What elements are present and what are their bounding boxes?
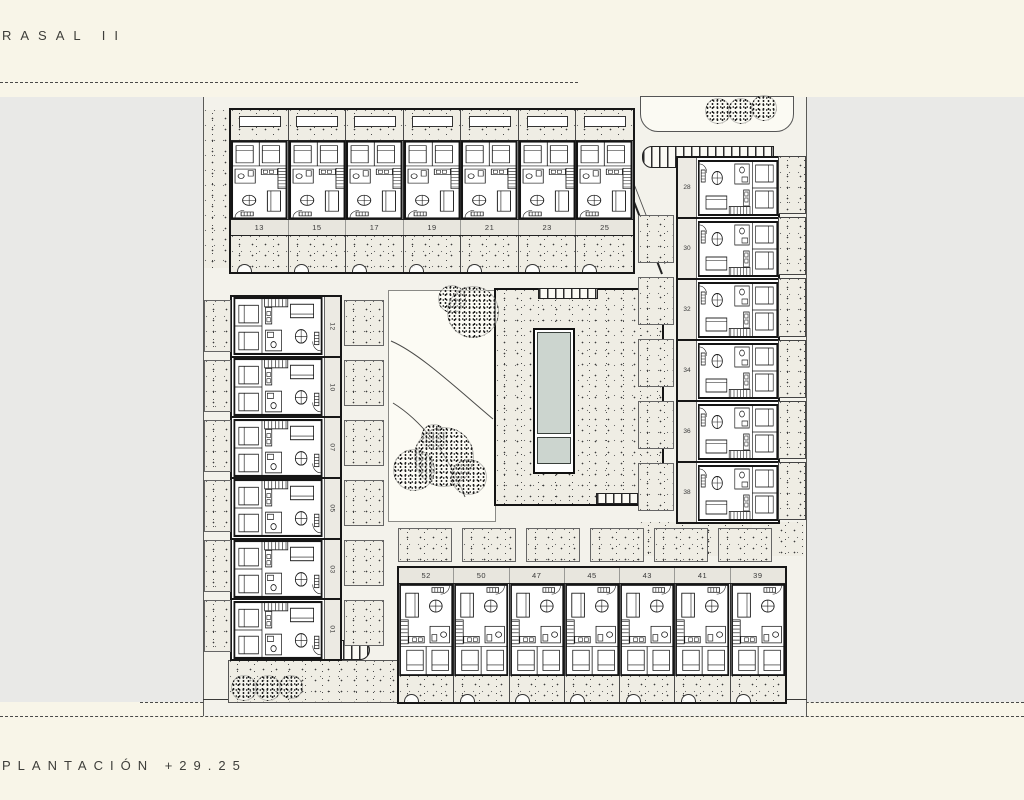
- unit-number-text: 07: [329, 444, 336, 452]
- unit-number-text: 01: [329, 626, 336, 634]
- unit-floorplan: [731, 584, 785, 676]
- unit-number: 17: [346, 220, 404, 235]
- pergola-rail: [412, 116, 454, 127]
- unit-number: 03: [324, 540, 340, 599]
- unit-floorplan: [698, 465, 778, 521]
- unit-number: 52: [399, 568, 454, 583]
- unit-cell-19: [404, 141, 462, 219]
- top-row-units: [231, 141, 633, 219]
- unit-cell-41: [675, 584, 730, 676]
- front-patio: [231, 110, 289, 140]
- gate-arc: [681, 694, 696, 702]
- side-patio: [778, 217, 806, 275]
- unit-cell-01: [232, 600, 324, 659]
- pergola-rail: [584, 116, 626, 127]
- unit-number: 30: [678, 219, 697, 278]
- unit-cell-28: [697, 158, 778, 217]
- unit-floorplan: [576, 141, 633, 219]
- unit-floorplan: [234, 297, 323, 355]
- rear-patio: [675, 676, 730, 702]
- right-column-block: 28 30: [676, 156, 780, 524]
- unit-number-text: 12: [329, 322, 336, 330]
- unit-cell-39: [731, 584, 785, 676]
- page-title: RASAL II: [2, 28, 127, 43]
- unit-floorplan: [289, 141, 346, 219]
- unit-cell-23: [519, 141, 577, 219]
- tree-icon: [451, 459, 487, 495]
- unit-cell-07: [232, 418, 324, 477]
- gate-arc: [515, 694, 530, 702]
- tree-icon: [255, 675, 281, 701]
- planter-strip: [526, 528, 580, 562]
- planter-strip: [654, 528, 708, 562]
- rear-patio: [289, 236, 347, 272]
- bottom-row-block: 52504745434139: [397, 566, 787, 704]
- swimming-pool: [533, 328, 575, 474]
- unit-floorplan: [234, 479, 323, 537]
- pergola-rail: [296, 116, 338, 127]
- unit-cell-32: [697, 280, 778, 339]
- unit-cell-47: [510, 584, 565, 676]
- gate-arc: [352, 264, 367, 272]
- unit-cell-30: [697, 219, 778, 278]
- unit-floorplan: [399, 584, 453, 676]
- gate-arc: [409, 264, 424, 272]
- unit-number: 19: [404, 220, 462, 235]
- unit-floorplan: [519, 141, 576, 219]
- side-patio: [778, 278, 806, 336]
- unit-cell-52: [399, 584, 454, 676]
- unit-cell-10: [232, 358, 324, 417]
- unit-cell-43: [620, 584, 675, 676]
- unit-row-32: 32: [678, 280, 778, 341]
- unit-number: 12: [324, 297, 340, 356]
- planter-strip: [344, 420, 384, 466]
- plan-edge-line: [806, 97, 807, 716]
- unit-row-38: 38: [678, 463, 778, 522]
- side-patio: [778, 156, 806, 214]
- pool-water: [537, 332, 571, 434]
- unit-number-text: 03: [329, 565, 336, 573]
- rear-patio: [510, 676, 565, 702]
- top-row-labels: 13151719212325: [231, 219, 633, 236]
- unit-number: 50: [454, 568, 509, 583]
- right-patio-strip: [778, 156, 806, 520]
- unit-floorplan: [698, 343, 778, 399]
- rear-patio-strip: [231, 236, 633, 272]
- rear-patio: [399, 676, 454, 702]
- unit-floorplan: [698, 221, 778, 277]
- rear-patio: [565, 676, 620, 702]
- rear-patio: [346, 236, 404, 272]
- unit-floorplan: [698, 404, 778, 460]
- tree-icon: [279, 675, 303, 699]
- front-patio: [519, 110, 577, 140]
- gate-arc: [736, 694, 751, 702]
- unit-cell-17: [346, 141, 404, 219]
- unit-floorplan: [454, 584, 508, 676]
- unit-row-36: 36: [678, 402, 778, 463]
- unit-number: 10: [324, 358, 340, 417]
- front-patio-strip: [231, 110, 633, 141]
- gate-arc: [626, 694, 641, 702]
- unit-floorplan: [234, 540, 323, 598]
- unit-floorplan: [346, 141, 403, 219]
- unit-number-text: 10: [329, 383, 336, 391]
- planter-strip: [204, 360, 231, 412]
- unit-floorplan: [565, 584, 619, 676]
- unit-cell-05: [232, 479, 324, 538]
- top-row-block: 13151719212325: [229, 108, 635, 274]
- planter-strip: [204, 480, 231, 532]
- unit-row-03: 03: [232, 540, 340, 601]
- planter-strip: [204, 110, 230, 268]
- unit-floorplan: [510, 584, 564, 676]
- unit-number: 36: [678, 402, 697, 461]
- tree-icon: [751, 95, 777, 121]
- gate-arc: [404, 694, 419, 702]
- unit-number: 28: [678, 158, 697, 217]
- gate-arc: [294, 264, 309, 272]
- gate-arc: [525, 264, 540, 272]
- unit-number: 45: [565, 568, 620, 583]
- pergola-rail: [527, 116, 569, 127]
- planter-strip: [204, 600, 231, 652]
- pool-water-small: [537, 437, 571, 464]
- tree-icon: [231, 675, 257, 701]
- unit-row-28: 28: [678, 158, 778, 219]
- planter-strip: [638, 215, 674, 263]
- planter-strip: [344, 480, 384, 526]
- plan-level-label: PLANTACIÓN +29.25: [2, 758, 247, 773]
- rear-patio: [620, 676, 675, 702]
- side-patio: [778, 401, 806, 459]
- unit-number: 47: [510, 568, 565, 583]
- planter-strip: [344, 300, 384, 346]
- rear-patio: [461, 236, 519, 272]
- unit-number: 21: [461, 220, 519, 235]
- front-patio: [346, 110, 404, 140]
- rear-patio: [231, 236, 289, 272]
- unit-number: 05: [324, 479, 340, 538]
- front-patio: [576, 110, 633, 140]
- unit-floorplan: [404, 141, 461, 219]
- unit-cell-15: [289, 141, 347, 219]
- unit-row-05: 05: [232, 479, 340, 540]
- unit-number: 32: [678, 280, 697, 339]
- planter-strip: [204, 540, 231, 592]
- unit-number: 15: [289, 220, 347, 235]
- bottom-patio-strip: [399, 676, 785, 702]
- unit-number: 23: [519, 220, 577, 235]
- unit-floorplan: [234, 601, 323, 659]
- planter-strip: [638, 463, 674, 511]
- unit-floorplan: [234, 358, 323, 416]
- unit-number: 41: [675, 568, 730, 583]
- unit-number: 38: [678, 463, 697, 522]
- front-patio: [404, 110, 462, 140]
- planter-strip: [204, 300, 231, 352]
- planter-strip: [344, 600, 384, 646]
- pergola-rail: [469, 116, 511, 127]
- unit-number: 39: [731, 568, 785, 583]
- rear-patio: [404, 236, 462, 272]
- planter-strip: [398, 528, 452, 562]
- gate-arc: [460, 694, 475, 702]
- boundary-dashed-line: [0, 716, 1024, 717]
- unit-cell-12: [232, 297, 324, 356]
- ramp-hatch: [538, 288, 598, 299]
- planter-strip: [344, 360, 384, 406]
- unit-number: 01: [324, 600, 340, 659]
- bottom-row-units: [399, 584, 785, 676]
- unit-cell-21: [461, 141, 519, 219]
- boundary-dashed-line: [0, 82, 578, 83]
- unit-number-text: 05: [329, 504, 336, 512]
- rear-patio: [454, 676, 509, 702]
- unit-number: 13: [231, 220, 289, 235]
- unit-cell-38: [697, 463, 778, 522]
- rear-patio: [576, 236, 633, 272]
- unit-row-01: 01: [232, 600, 340, 659]
- unit-cell-45: [565, 584, 620, 676]
- site-plan-canvas: RASAL II PLANTACIÓN +29.25: [0, 0, 1024, 800]
- planter-strip: [590, 528, 644, 562]
- unit-number: 07: [324, 418, 340, 477]
- planter-strip: [462, 528, 516, 562]
- left-column-block: 12 10: [230, 295, 342, 661]
- unit-cell-03: [232, 540, 324, 599]
- unit-number: 34: [678, 341, 697, 400]
- unit-number: 25: [576, 220, 633, 235]
- page-margin-left: [0, 97, 203, 702]
- unit-floorplan: [234, 419, 323, 477]
- unit-cell-25: [576, 141, 633, 219]
- unit-row-07: 07: [232, 418, 340, 479]
- side-patio: [778, 340, 806, 398]
- pergola-rail: [354, 116, 396, 127]
- unit-cell-50: [454, 584, 509, 676]
- gate-arc: [237, 264, 252, 272]
- unit-floorplan: [698, 160, 778, 216]
- unit-floorplan: [231, 141, 288, 219]
- gate-arc: [582, 264, 597, 272]
- planter-strip: [344, 540, 384, 586]
- unit-number: 43: [620, 568, 675, 583]
- front-patio: [289, 110, 347, 140]
- tree-icon: [393, 449, 435, 491]
- gate-arc: [570, 694, 585, 702]
- tree-icon: [447, 286, 499, 338]
- planter-strip: [638, 277, 674, 325]
- page-margin-right: [807, 97, 1024, 702]
- front-patio: [461, 110, 519, 140]
- unit-row-10: 10: [232, 358, 340, 419]
- planter-strip: [204, 420, 231, 472]
- tree-icon: [728, 98, 754, 124]
- planter-strip: [718, 528, 772, 562]
- bottom-row-labels: 52504745434139: [399, 568, 785, 584]
- unit-row-12: 12: [232, 297, 340, 358]
- unit-floorplan: [461, 141, 518, 219]
- unit-floorplan: [620, 584, 674, 676]
- unit-floorplan: [675, 584, 729, 676]
- planter-strip: [638, 401, 674, 449]
- rear-patio: [519, 236, 577, 272]
- unit-floorplan: [698, 282, 778, 338]
- side-patio: [778, 462, 806, 520]
- unit-cell-13: [231, 141, 289, 219]
- unit-cell-36: [697, 402, 778, 461]
- planter-strip: [638, 339, 674, 387]
- pergola-rail: [239, 116, 281, 127]
- unit-cell-34: [697, 341, 778, 400]
- gate-arc: [467, 264, 482, 272]
- rear-patio: [731, 676, 785, 702]
- unit-row-34: 34: [678, 341, 778, 402]
- unit-row-30: 30: [678, 219, 778, 280]
